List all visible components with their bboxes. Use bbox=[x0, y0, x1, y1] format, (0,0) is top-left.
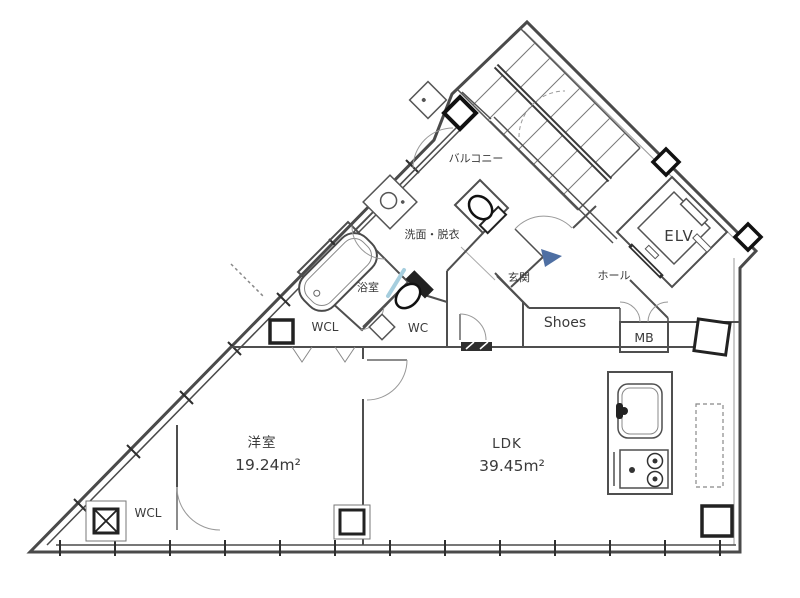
room-label-western: 洋室 bbox=[248, 434, 277, 451]
room-area-ldk: 39.45m² bbox=[479, 457, 545, 475]
floor-plan-drawing: バルコニー 洗面・脱衣 浴室 WCL WC 玄関 ホール Shoes MB EL… bbox=[0, 0, 800, 598]
room-label-wcl-lower: WCL bbox=[135, 506, 162, 520]
column bbox=[702, 506, 732, 536]
balcony-equipment bbox=[410, 82, 447, 119]
room-label-ldk: LDK bbox=[492, 436, 522, 452]
room-label-hall: ホール bbox=[598, 269, 631, 282]
room-label-balcony: バルコニー bbox=[449, 152, 504, 165]
room-label-wcl-upper: WCL bbox=[312, 320, 339, 334]
room-label-bathroom: 浴室 bbox=[357, 280, 379, 294]
room-label-elv: ELV bbox=[664, 227, 693, 245]
room-label-wc: WC bbox=[408, 321, 428, 335]
room-label-mb: MB bbox=[634, 330, 653, 345]
column-x-box bbox=[86, 501, 126, 541]
column bbox=[334, 505, 370, 539]
room-label-shoes: Shoes bbox=[544, 315, 586, 331]
column bbox=[270, 320, 293, 343]
column-rotated bbox=[694, 319, 730, 355]
floor-plan: バルコニー 洗面・脱衣 浴室 WCL WC 玄関 ホール Shoes MB EL… bbox=[0, 0, 800, 598]
room-label-entrance: 玄関 bbox=[508, 270, 530, 284]
closet-dashed-line bbox=[231, 264, 263, 296]
room-area-western: 19.24m² bbox=[235, 456, 301, 474]
room-label-washroom: 洗面・脱衣 bbox=[405, 227, 460, 241]
